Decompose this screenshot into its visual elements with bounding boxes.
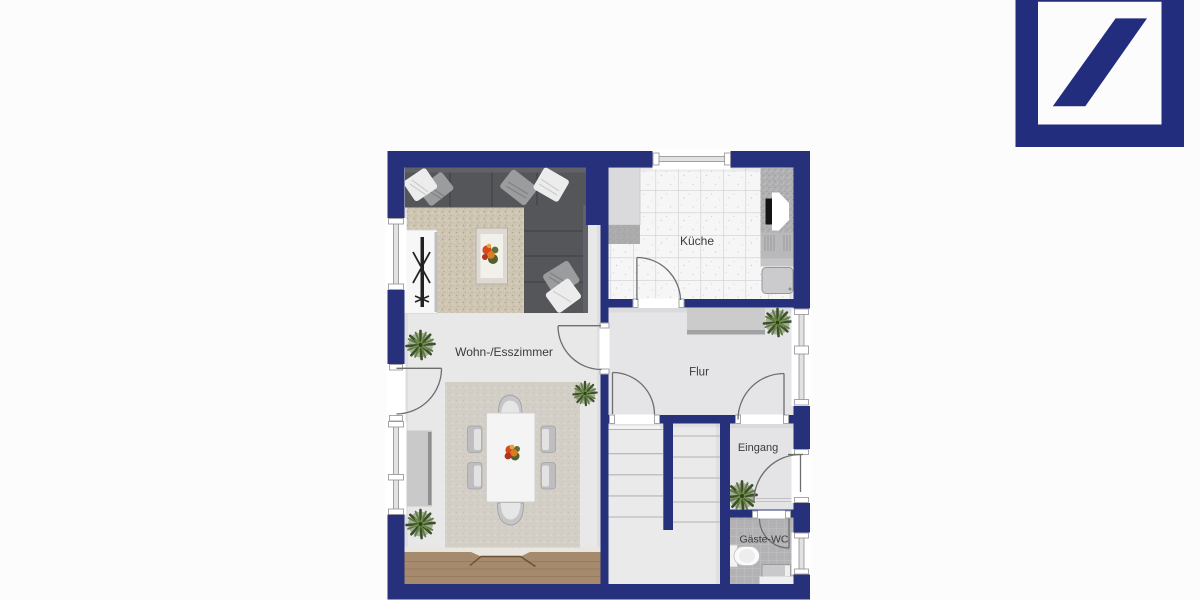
svg-text:Gäste-WC: Gäste-WC xyxy=(739,534,788,546)
svg-text:Flur: Flur xyxy=(689,367,709,379)
svg-text:Eingang: Eingang xyxy=(738,442,778,454)
svg-text:Küche: Küche xyxy=(680,234,714,248)
svg-text:Wohn-/Esszimmer: Wohn-/Esszimmer xyxy=(455,345,553,359)
